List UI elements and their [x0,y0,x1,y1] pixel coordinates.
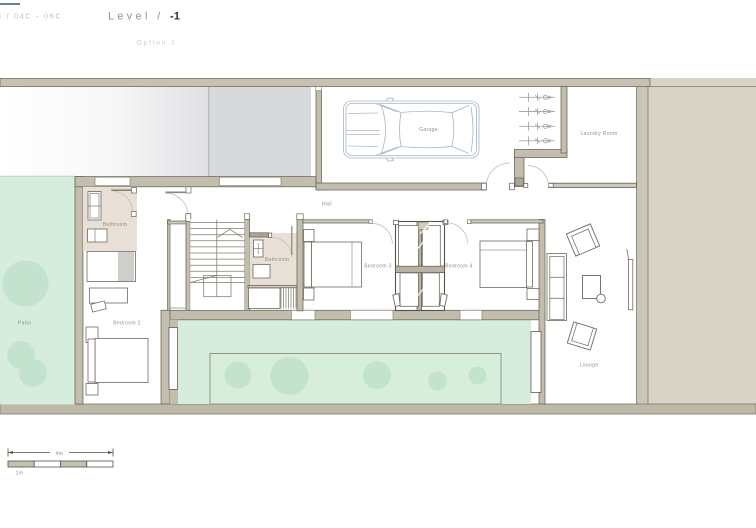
svg-text:Bedroom 3: Bedroom 3 [364,264,392,270]
svg-text:Bedroom 2: Bedroom 2 [113,321,141,327]
svg-text:4 / 04C - 06C: 4 / 04C - 06C [0,11,62,20]
svg-text:Laundry Room: Laundry Room [581,131,618,137]
svg-text:4m: 4m [56,451,64,457]
svg-text:Garage: Garage [419,127,438,133]
svg-text:1m: 1m [16,471,24,477]
svg-text:Option 1: Option 1 [137,40,177,47]
svg-text:Level / -1: Level / -1 [108,11,180,23]
svg-text:Patio: Patio [18,321,31,327]
svg-text:Hall: Hall [322,202,332,208]
svg-text:Bedroom 4: Bedroom 4 [445,264,473,270]
svg-text:Bathroom: Bathroom [265,257,289,263]
svg-text:Lounge: Lounge [580,363,599,369]
svg-text:Bathroom: Bathroom [103,222,127,228]
